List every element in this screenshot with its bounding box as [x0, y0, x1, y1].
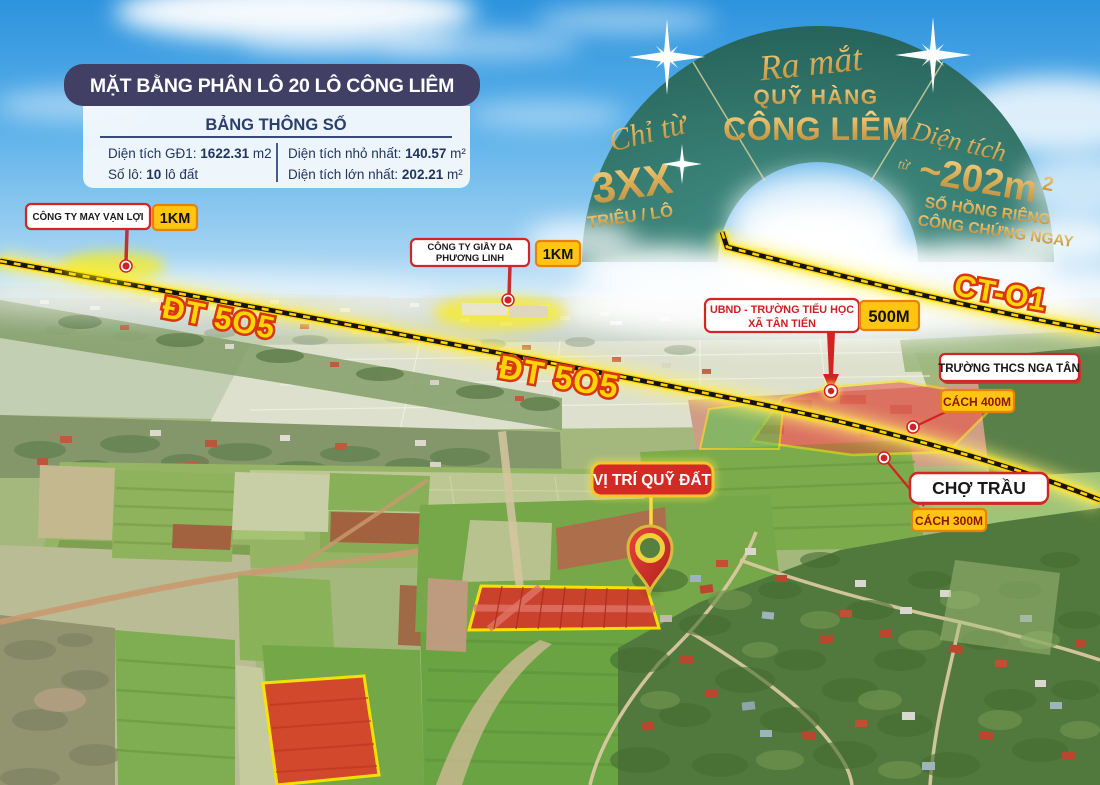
svg-text:CHỢ TRẦU: CHỢ TRẦU [932, 477, 1026, 498]
svg-text:Số lô: 10 lô đất: Số lô: 10 lô đất [108, 167, 198, 182]
svg-text:1KM: 1KM [160, 211, 191, 227]
svg-text:CÁCH 400M: CÁCH 400M [943, 394, 1011, 409]
svg-text:CÔNG TY MAY VẠN LỢI: CÔNG TY MAY VẠN LỢI [32, 211, 143, 223]
svg-text:500M: 500M [868, 308, 909, 326]
svg-text:QUỸ HÀNG: QUỸ HÀNG [753, 86, 878, 109]
svg-text:XÃ TÂN TIẾN: XÃ TÂN TIẾN [748, 317, 816, 330]
svg-text:UBND - TRƯỜNG TIỂU HỌC: UBND - TRƯỜNG TIỂU HỌC [710, 303, 854, 316]
svg-text:CÔNG TY GIẦY DA: CÔNG TY GIẦY DA [427, 241, 512, 253]
svg-text:Diện tích nhỏ nhất: 140.57 m²: Diện tích nhỏ nhất: 140.57 m² [288, 146, 466, 161]
svg-text:TRƯỜNG THCS NGA TÂN: TRƯỜNG THCS NGA TÂN [938, 362, 1080, 375]
svg-text:VỊ TRÍ QUỸ ĐẤT: VỊ TRÍ QUỸ ĐẤT [593, 471, 712, 489]
svg-text:MẶT BẰNG PHÂN LÔ 20 LÔ CÔNG LI: MẶT BẰNG PHÂN LÔ 20 LÔ CÔNG LIÊM [90, 73, 454, 97]
svg-text:CÁCH 300M: CÁCH 300M [915, 513, 983, 528]
svg-text:Diện tích lớn nhất: 202.21 m²: Diện tích lớn nhất: 202.21 m² [288, 167, 463, 182]
svg-text:BẢNG THÔNG SỐ: BẢNG THÔNG SỐ [205, 114, 346, 134]
svg-text:PHƯƠNG LINH: PHƯƠNG LINH [436, 253, 504, 264]
svg-text:CÔNG LIÊM: CÔNG LIÊM [723, 111, 909, 147]
svg-text:Diện tích GĐ1: 1622.31 m2: Diện tích GĐ1: 1622.31 m2 [108, 146, 272, 161]
svg-text:1KM: 1KM [543, 247, 574, 263]
